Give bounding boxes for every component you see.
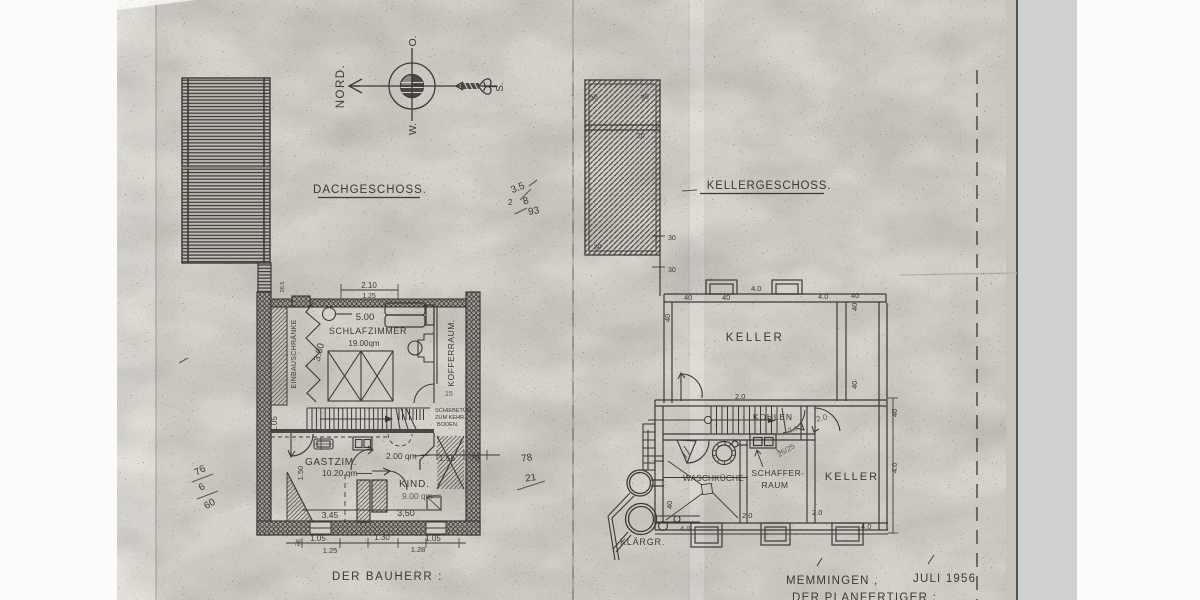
svg-text:W.: W. bbox=[407, 123, 419, 135]
svg-text:1.28: 1.28 bbox=[411, 545, 426, 554]
svg-text:1.25: 1.25 bbox=[323, 546, 338, 555]
svg-text:KELLER: KELLER bbox=[825, 471, 879, 483]
svg-text:10.20 qm: 10.20 qm bbox=[322, 468, 357, 478]
svg-text:3.45: 3.45 bbox=[322, 510, 339, 520]
svg-text:RAUM: RAUM bbox=[761, 480, 788, 490]
svg-text:4.0: 4.0 bbox=[818, 292, 828, 301]
svg-text:SCHAFFER-: SCHAFFER- bbox=[751, 468, 804, 478]
svg-text:ZUM KEHR.: ZUM KEHR. bbox=[435, 415, 466, 421]
svg-text:19.00qm: 19.00qm bbox=[348, 339, 379, 348]
svg-text:KLÄRGR.: KLÄRGR. bbox=[620, 537, 665, 547]
svg-text:2.00 qm: 2.00 qm bbox=[386, 451, 417, 461]
svg-text:20: 20 bbox=[637, 133, 645, 140]
svg-text:2: 2 bbox=[508, 198, 513, 207]
svg-text:S.: S. bbox=[495, 82, 506, 91]
svg-text:2.10: 2.10 bbox=[361, 281, 377, 290]
svg-text:1.25: 1.25 bbox=[362, 293, 376, 300]
svg-text:KELLER: KELLER bbox=[726, 332, 785, 344]
svg-text:40: 40 bbox=[722, 293, 730, 302]
svg-text:MEMMINGEN ,: MEMMINGEN , bbox=[786, 575, 878, 587]
svg-text:3,50: 3,50 bbox=[397, 508, 415, 518]
svg-text:4.0: 4.0 bbox=[861, 522, 871, 531]
svg-text:.15: .15 bbox=[443, 391, 453, 398]
svg-text:GASTZIM.: GASTZIM. bbox=[305, 457, 357, 468]
svg-text:40: 40 bbox=[684, 293, 692, 302]
svg-text:1.30: 1.30 bbox=[374, 533, 390, 542]
svg-text:2.0: 2.0 bbox=[735, 392, 745, 401]
svg-text:KIND.: KIND. bbox=[399, 479, 430, 490]
svg-text:4.0: 4.0 bbox=[890, 463, 899, 473]
svg-text:KOFFERRAUM.: KOFFERRAUM. bbox=[446, 319, 456, 386]
svg-text:2.0: 2.0 bbox=[742, 511, 752, 520]
svg-text:21: 21 bbox=[524, 472, 537, 485]
svg-text:4.0: 4.0 bbox=[751, 284, 761, 293]
svg-text:DER BAUHERR :: DER BAUHERR : bbox=[332, 571, 443, 583]
svg-text:26.5: 26.5 bbox=[280, 282, 286, 293]
svg-text:1.05: 1.05 bbox=[310, 534, 326, 543]
svg-text:1.05: 1.05 bbox=[270, 416, 279, 432]
svg-text:1.55: 1.55 bbox=[439, 453, 456, 463]
svg-text:SCHIEBETÜR: SCHIEBETÜR bbox=[435, 407, 471, 414]
svg-text:40: 40 bbox=[663, 314, 672, 322]
svg-text:1.05: 1.05 bbox=[425, 534, 441, 543]
svg-text:O.: O. bbox=[407, 35, 419, 46]
svg-text:30: 30 bbox=[668, 235, 676, 242]
svg-text:DACHGESCHOSS.: DACHGESCHOSS. bbox=[313, 184, 427, 196]
svg-text:NORD.: NORD. bbox=[335, 64, 347, 109]
svg-text:DER PLANFERTIGER :: DER PLANFERTIGER : bbox=[792, 592, 937, 600]
svg-text:5.00: 5.00 bbox=[356, 312, 375, 323]
svg-text:40: 40 bbox=[850, 381, 859, 389]
svg-text:40: 40 bbox=[665, 501, 674, 509]
svg-text:4.0: 4.0 bbox=[680, 524, 690, 533]
svg-text:40: 40 bbox=[890, 409, 899, 417]
svg-text:KELLERGESCHOSS.: KELLERGESCHOSS. bbox=[707, 180, 831, 192]
svg-text:KOHLEN: KOHLEN bbox=[753, 412, 793, 422]
svg-text:78: 78 bbox=[521, 452, 534, 465]
svg-text:1.50: 1.50 bbox=[296, 466, 305, 481]
svg-text:JULI 1956: JULI 1956 bbox=[913, 573, 976, 585]
svg-text:40: 40 bbox=[851, 291, 859, 300]
svg-text:40: 40 bbox=[850, 303, 859, 311]
svg-text:BODEN.: BODEN. bbox=[437, 422, 459, 428]
svg-text:70: 70 bbox=[470, 453, 480, 463]
svg-text:30: 30 bbox=[668, 267, 676, 274]
svg-text:EINBAUSCHRÄNKE: EINBAUSCHRÄNKE bbox=[290, 319, 298, 388]
svg-text:2.0: 2.0 bbox=[812, 508, 822, 517]
